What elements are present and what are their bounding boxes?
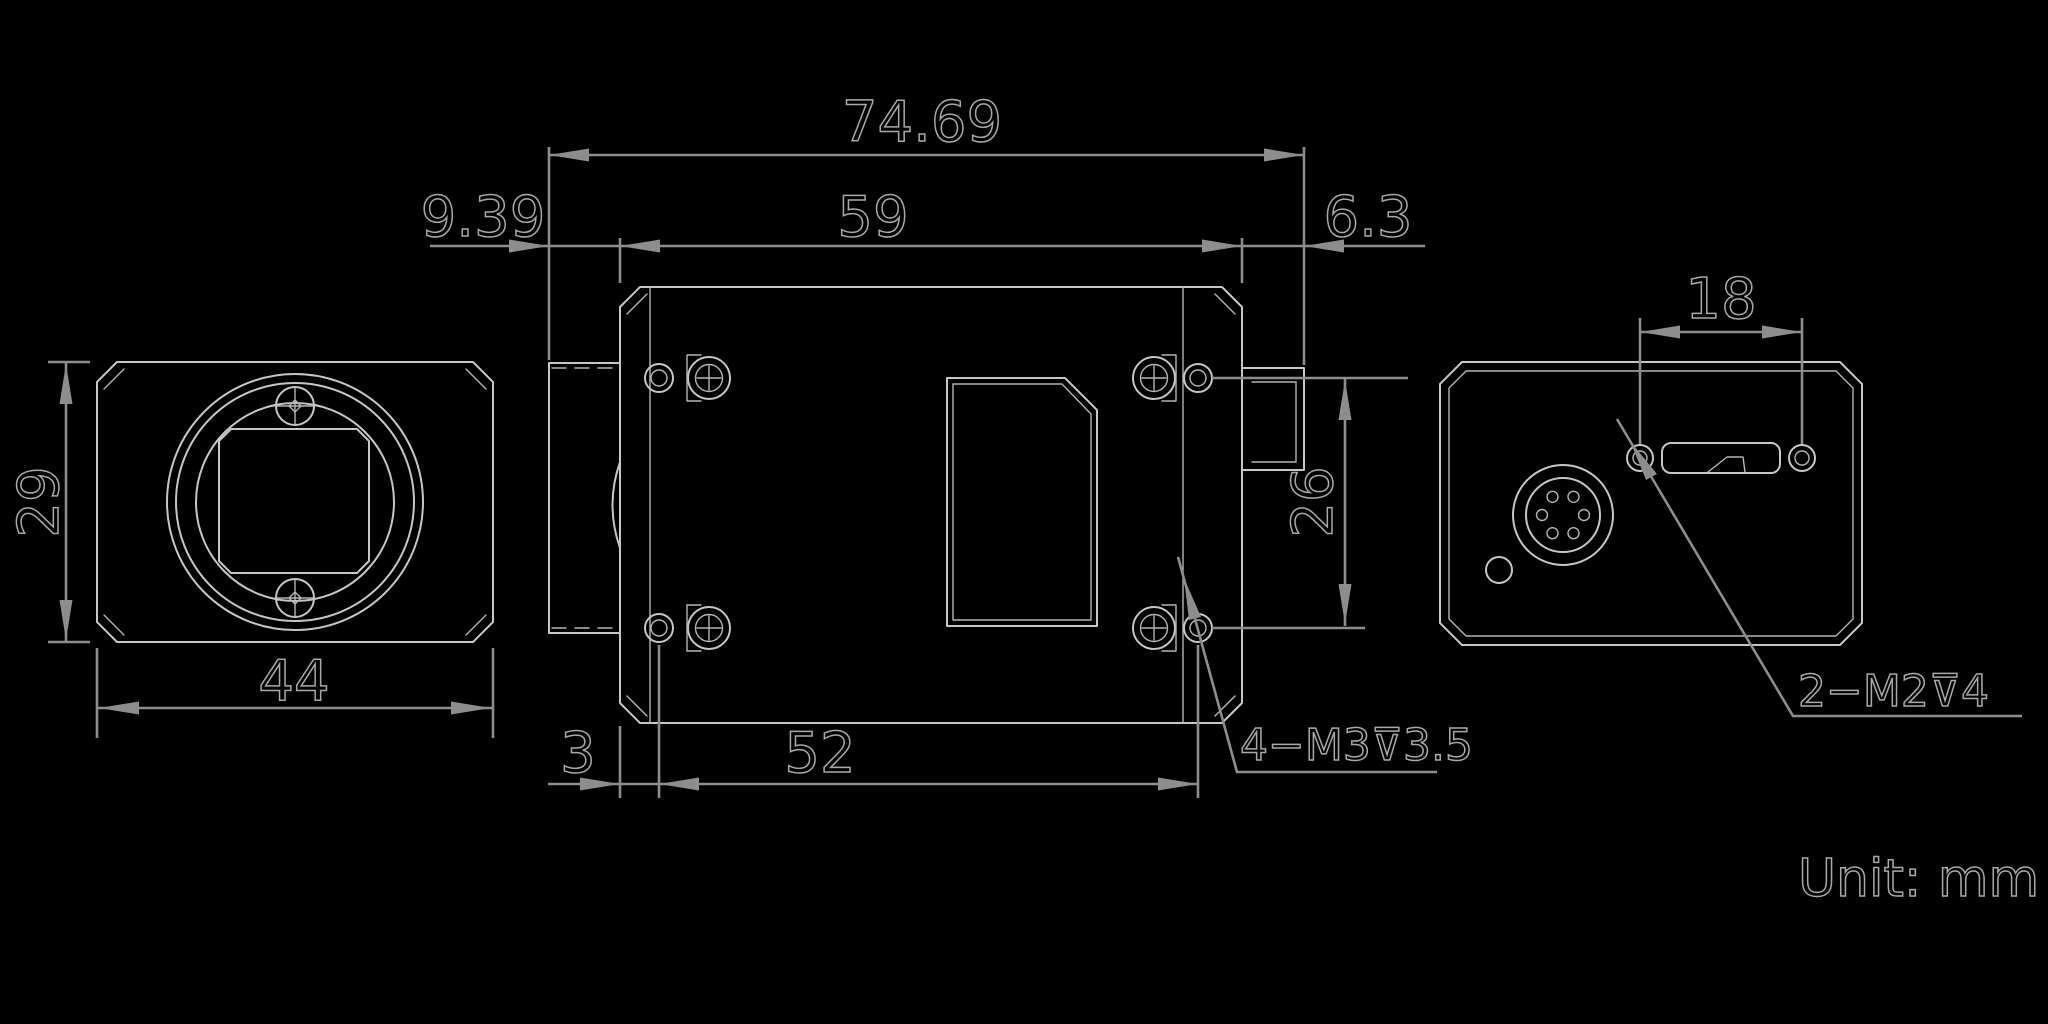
dim-text-width: 44 (258, 649, 329, 714)
dim-width-44: 44 (97, 648, 493, 738)
connector-pin (1547, 491, 1558, 502)
front-view: 29 44 (7, 362, 493, 738)
leader-arrowhead (1184, 578, 1201, 620)
hole-outer (645, 614, 673, 642)
back-view: 18 2−M2⊽4 (1440, 267, 2022, 717)
connector-outer-circle (1513, 465, 1613, 565)
drawing-canvas: 29 44 (0, 0, 2048, 1024)
usb-screw-hole-right (1789, 445, 1815, 471)
back-body-inner-outline (1449, 371, 1853, 636)
case-screw (1133, 355, 1176, 401)
status-led-hole (1486, 557, 1512, 583)
dim-row-3-52: 3 52 (548, 645, 1198, 798)
rear-connector-block (1242, 368, 1304, 470)
rear-connector-port (1252, 382, 1296, 462)
power-io-connector (1513, 465, 1613, 565)
case-screw (687, 355, 730, 401)
hole-outer (1184, 364, 1212, 392)
dim-row-9-39-59-6-3: 9.39 59 6.3 (421, 185, 1425, 283)
lens-barrel-outline (549, 363, 620, 633)
arrowhead (1339, 584, 1352, 624)
dim-text-rear-protrusion: 6.3 (1323, 185, 1412, 250)
screw-cross (697, 366, 721, 390)
top-view: 74.69 9.39 59 6.3 26 (421, 90, 1473, 798)
front-screw-top (276, 387, 314, 425)
arrowhead (451, 702, 491, 715)
usb-slot-notch (1708, 457, 1745, 472)
arrowhead (1202, 240, 1242, 253)
thread-label-back-view: 2−M2⊽4 (1798, 666, 1989, 717)
screw-cross (1142, 616, 1166, 640)
lens-flange-arc (613, 462, 621, 548)
usb-port (1662, 443, 1780, 473)
hole-outer (1789, 445, 1815, 471)
back-body-outline (1440, 362, 1862, 645)
lens-mount-thread-circle (196, 403, 394, 601)
front-screw-bottom (276, 579, 314, 617)
arrowhead (1264, 149, 1304, 162)
connector-pin (1547, 528, 1558, 539)
screw-cross (697, 616, 721, 640)
hole-inner (1795, 451, 1809, 465)
extension-line (1640, 318, 1802, 444)
connector-pin (1568, 528, 1579, 539)
callout-usb-screw-thread: 2−M2⊽4 (1617, 419, 2022, 717)
dim-overall-length-74-69: 74.69 (549, 90, 1304, 365)
dim-height-29: 29 (7, 362, 90, 642)
dim-text-hole-row-spacing: 26 (1281, 466, 1346, 537)
connector-pin (1537, 510, 1548, 521)
arrowhead (549, 149, 589, 162)
dim-screw-spacing-18: 18 (1640, 267, 1802, 444)
callout-mount-thread: 4−M3⊽3.5 (1178, 557, 1473, 772)
dim-text-overall-length: 74.69 (842, 90, 1002, 155)
arrowhead (60, 364, 73, 404)
hole-inner (651, 370, 667, 386)
mount-hole (1184, 364, 1212, 392)
dim-text-screw-spacing: 18 (1685, 267, 1756, 332)
dim-text-lens-protrusion: 9.39 (421, 185, 546, 250)
tripod-plate-opening-inner (953, 384, 1091, 620)
dim-text-body-length: 59 (837, 185, 908, 250)
hole-outer (645, 364, 673, 392)
thread-label-top-view: 4−M3⊽3.5 (1240, 720, 1473, 771)
arrowhead (1158, 778, 1198, 791)
mount-hole (645, 614, 673, 642)
connector-pin (1579, 510, 1590, 521)
screw-cross (1142, 366, 1166, 390)
usb-slot-outline (1662, 443, 1780, 473)
case-screw (1133, 605, 1176, 651)
arrowhead (1339, 380, 1352, 420)
top-body-outline (620, 287, 1242, 723)
extension-line (620, 645, 1198, 798)
arrowhead (1640, 326, 1680, 339)
unit-note: Unit: mm (1798, 849, 2039, 909)
dim-text-hole-column-spacing: 52 (784, 721, 855, 786)
screw-slot (277, 580, 313, 616)
arrowhead (99, 702, 139, 715)
screw-slot (277, 388, 313, 424)
hole-inner (651, 620, 667, 636)
sensor-window (219, 429, 369, 573)
mount-hole (645, 364, 673, 392)
hole-inner (1190, 370, 1206, 386)
tripod-plate-opening-outer (947, 378, 1097, 626)
connector-pin (1568, 491, 1579, 502)
arrowhead (1762, 326, 1802, 339)
arrowhead (620, 240, 660, 253)
camera-dimension-drawing: 29 44 (0, 0, 2048, 1024)
extension-line (549, 147, 1304, 365)
case-screw (687, 605, 730, 651)
dim-text-height: 29 (7, 466, 72, 537)
arrowhead (659, 778, 699, 791)
arrowhead (60, 600, 73, 640)
dim-text-hole-front-offset: 3 (560, 721, 596, 786)
